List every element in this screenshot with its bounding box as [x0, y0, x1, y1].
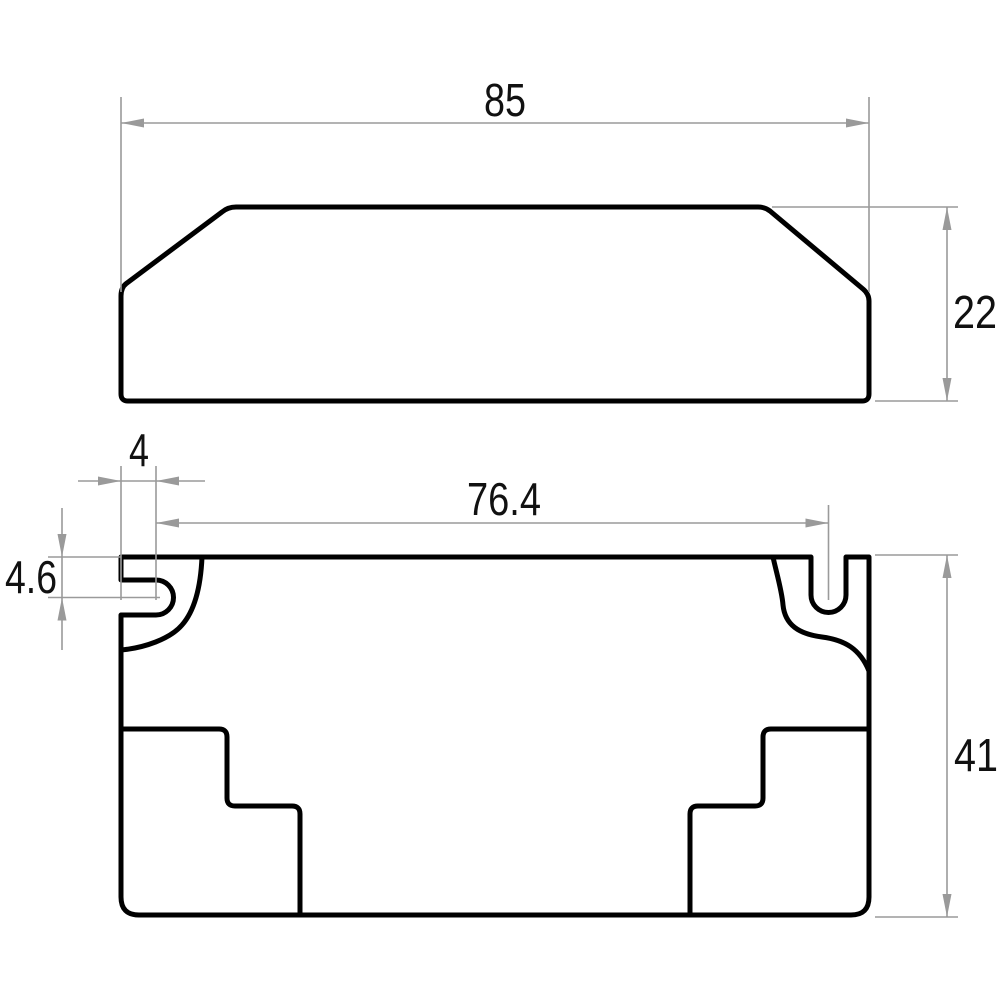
dimension-text-22: 22: [953, 286, 997, 338]
dimension-76-4: 76.4: [156, 473, 829, 600]
dimension-85: 85: [121, 74, 869, 292]
side-view-outline: [121, 207, 869, 401]
right-mounting-slot-boss-curve: [773, 557, 869, 671]
bottom-view-outline: [121, 557, 869, 915]
technical-drawing-page: 85 22 4 76.4 4.6: [0, 0, 1000, 1000]
dimension-41: 41: [875, 555, 998, 917]
dimension-22: 22: [772, 207, 997, 401]
dimension-text-4: 4: [129, 424, 149, 476]
dimension-4: 4: [78, 424, 205, 600]
left-mounting-slot-boss-curve: [121, 557, 202, 650]
extension-lines-85: [121, 97, 869, 292]
extension-lines-4-6: [48, 557, 160, 598]
right-step-cutout-edge: [690, 729, 869, 915]
drawing-canvas: 85 22 4 76.4 4.6: [0, 0, 1000, 1000]
dimension-text-85: 85: [484, 74, 526, 126]
bottom-view: [121, 557, 869, 915]
extension-lines-41: [875, 555, 958, 917]
side-view: [121, 207, 869, 401]
dimension-text-4-6: 4.6: [5, 551, 57, 603]
dimension-text-41: 41: [954, 729, 998, 781]
left-step-cutout-edge: [121, 729, 300, 915]
dimension-text-76-4: 76.4: [467, 473, 541, 525]
